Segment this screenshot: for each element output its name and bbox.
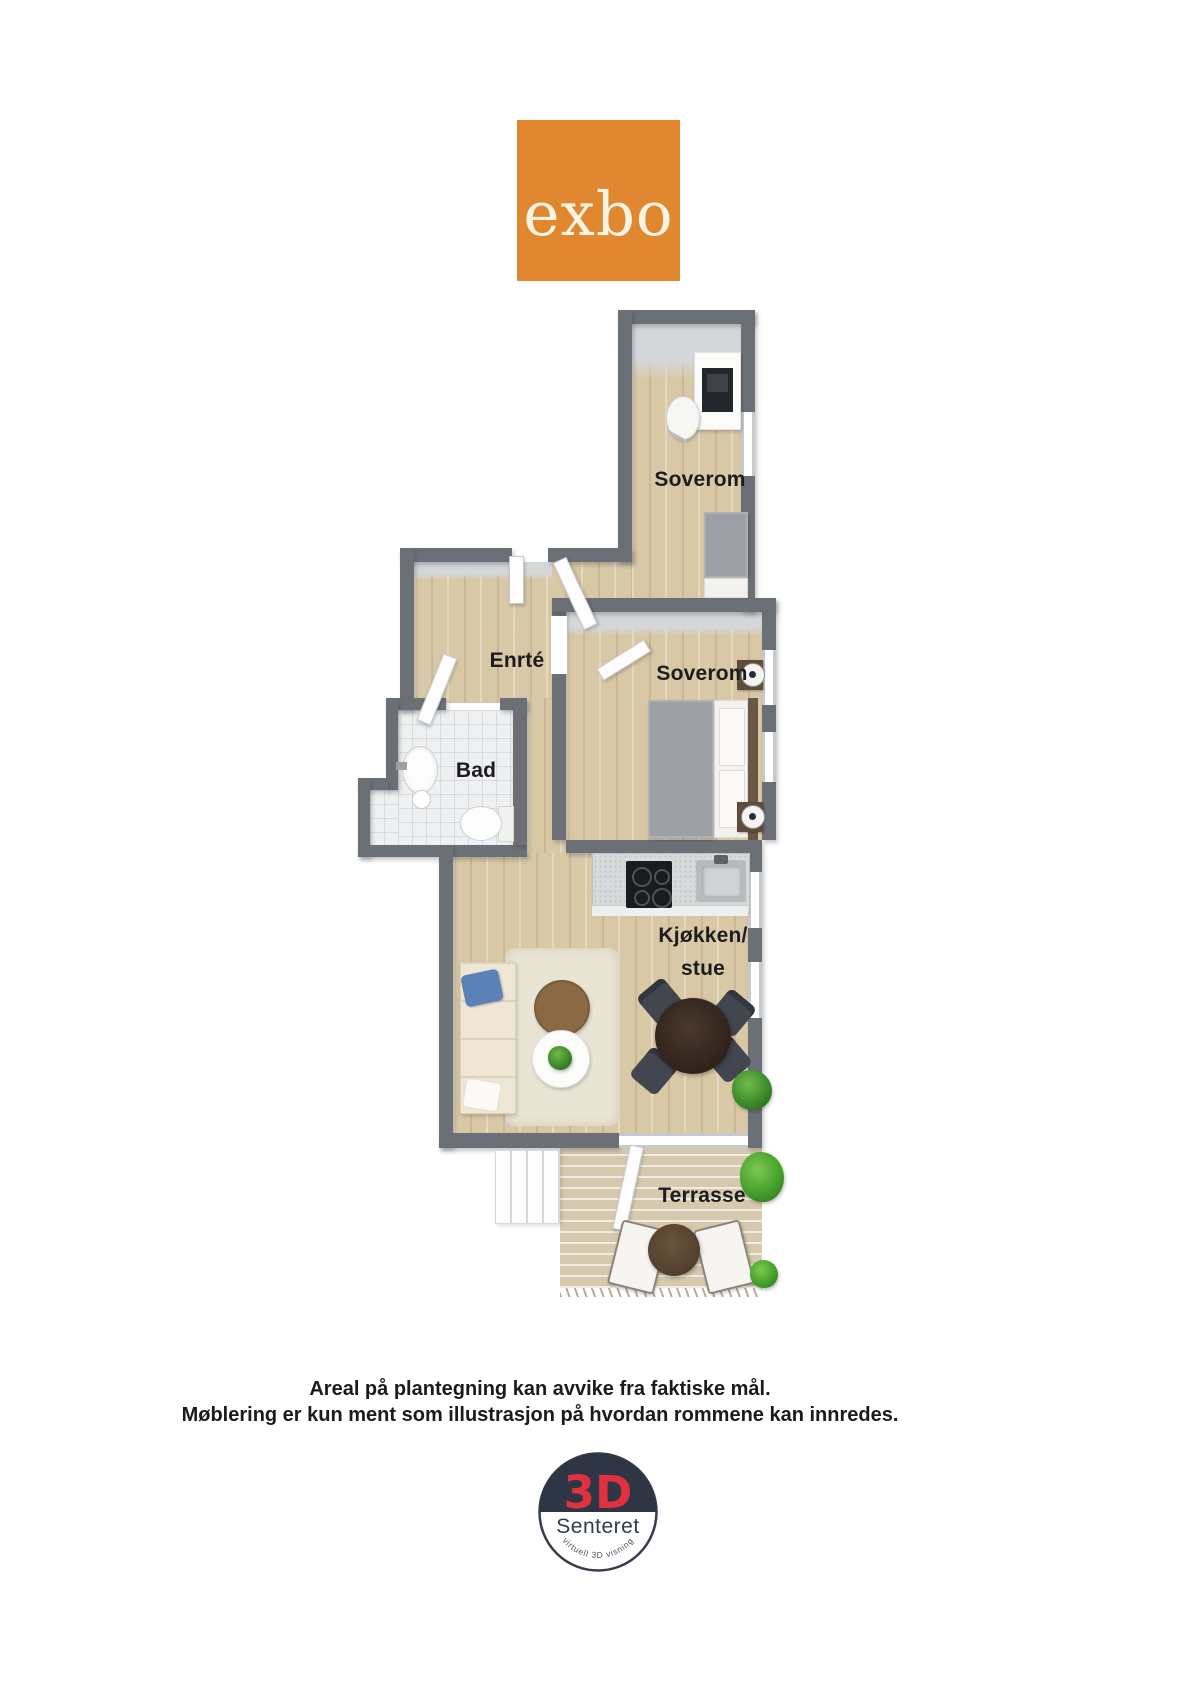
bedside-lamp-center bbox=[749, 813, 756, 820]
entry-door-leaf bbox=[509, 556, 524, 604]
burner bbox=[634, 890, 650, 906]
kitchen-label-line2: stue bbox=[681, 957, 725, 981]
disclaimer: Areal på plantegning kan avvike fra fakt… bbox=[0, 1376, 1080, 1428]
bathroom-label: Bad bbox=[456, 759, 496, 783]
plant bbox=[740, 1152, 784, 1202]
plant bbox=[548, 1046, 572, 1070]
coffee-table bbox=[534, 980, 590, 1036]
wall bbox=[400, 548, 512, 562]
toilet-bowl bbox=[460, 806, 502, 841]
corridor-floor bbox=[527, 698, 552, 840]
entrance-wall-face bbox=[414, 562, 552, 580]
sink-faucet bbox=[396, 762, 407, 770]
entrance-label: Enrté bbox=[490, 649, 545, 673]
terrace-label: Terrasse bbox=[658, 1184, 746, 1208]
door-opening bbox=[551, 616, 567, 674]
bedroom2-label: Soverom bbox=[656, 662, 747, 686]
single-bed-blanket bbox=[704, 512, 748, 578]
plant bbox=[732, 1070, 772, 1110]
bathroom-alcove-floor bbox=[370, 790, 398, 845]
wall bbox=[439, 1133, 619, 1148]
window bbox=[741, 412, 755, 476]
sink-faucet bbox=[714, 855, 728, 864]
kitchen-label-line1: Kjøkken/ bbox=[658, 924, 747, 948]
wall bbox=[566, 840, 762, 853]
floorplan-page: exbo bbox=[0, 0, 1200, 1697]
corridor-opening-floor bbox=[527, 840, 566, 853]
wall bbox=[386, 698, 398, 790]
bathroom-sink bbox=[402, 746, 438, 794]
wall bbox=[400, 548, 414, 710]
plant bbox=[750, 1260, 778, 1288]
senteret-text: Senteret bbox=[556, 1515, 639, 1538]
shower-fitting bbox=[412, 790, 431, 809]
window bbox=[748, 872, 762, 928]
pillow bbox=[719, 708, 745, 766]
single-bed-sheet bbox=[704, 578, 748, 598]
exbo-logo-text: exbo bbox=[523, 179, 673, 250]
terrace-table bbox=[648, 1224, 700, 1276]
3d-senteret-logo-svg: 3D Senteret virtuell 3D visning bbox=[537, 1451, 659, 1573]
disclaimer-line2: Møblering er kun ment som illustrasjon p… bbox=[0, 1402, 1080, 1428]
wall bbox=[762, 598, 776, 840]
disclaimer-line1: Areal på plantegning kan avvike fra fakt… bbox=[0, 1376, 1080, 1402]
burner bbox=[632, 867, 652, 887]
entrance-steps bbox=[495, 1150, 560, 1224]
exbo-logo: exbo bbox=[517, 120, 680, 281]
dining-table bbox=[655, 998, 731, 1074]
laptop-screen bbox=[707, 374, 728, 392]
wall bbox=[618, 310, 755, 324]
bedside-lamp-center bbox=[749, 671, 756, 678]
burner bbox=[654, 869, 670, 885]
kitchen-sink-basin bbox=[702, 866, 740, 896]
3d-senteret-logo: 3D Senteret virtuell 3D visning bbox=[537, 1451, 659, 1573]
wall bbox=[618, 310, 632, 562]
terrace-edge-fringe bbox=[560, 1288, 762, 1297]
wall bbox=[513, 698, 527, 845]
bedroom1-label: Soverom bbox=[654, 468, 745, 492]
wall bbox=[439, 845, 453, 1148]
double-bed-blanket bbox=[648, 700, 714, 838]
3d-text: 3D bbox=[564, 1466, 633, 1519]
sofa-pillow-white bbox=[462, 1077, 502, 1112]
window bbox=[762, 732, 776, 782]
burner bbox=[652, 888, 672, 908]
